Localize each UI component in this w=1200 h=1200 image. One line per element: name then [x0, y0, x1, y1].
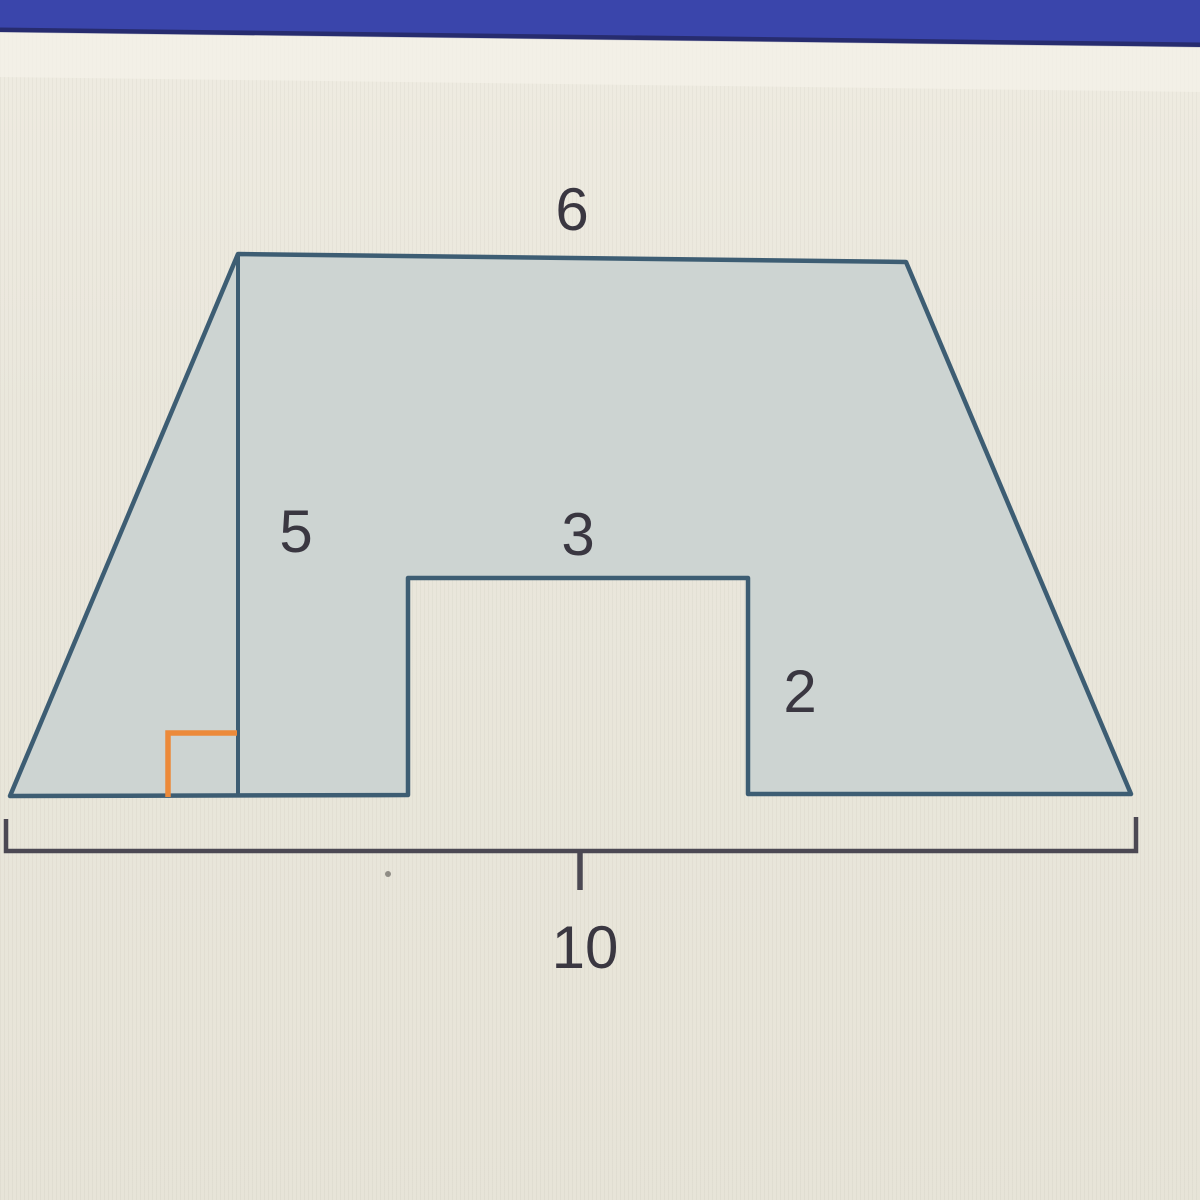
label-top-side: 6 — [555, 176, 588, 243]
label-notch-height: 2 — [783, 658, 816, 725]
base-bracket — [6, 817, 1136, 851]
label-base: 10 — [552, 914, 619, 981]
dust-speck — [385, 871, 391, 877]
geometry-figure: 6 5 3 2 10 — [0, 0, 1200, 1200]
screen: 6 5 3 2 10 — [0, 0, 1200, 1200]
label-notch-width: 3 — [561, 501, 594, 568]
label-height: 5 — [279, 498, 312, 565]
